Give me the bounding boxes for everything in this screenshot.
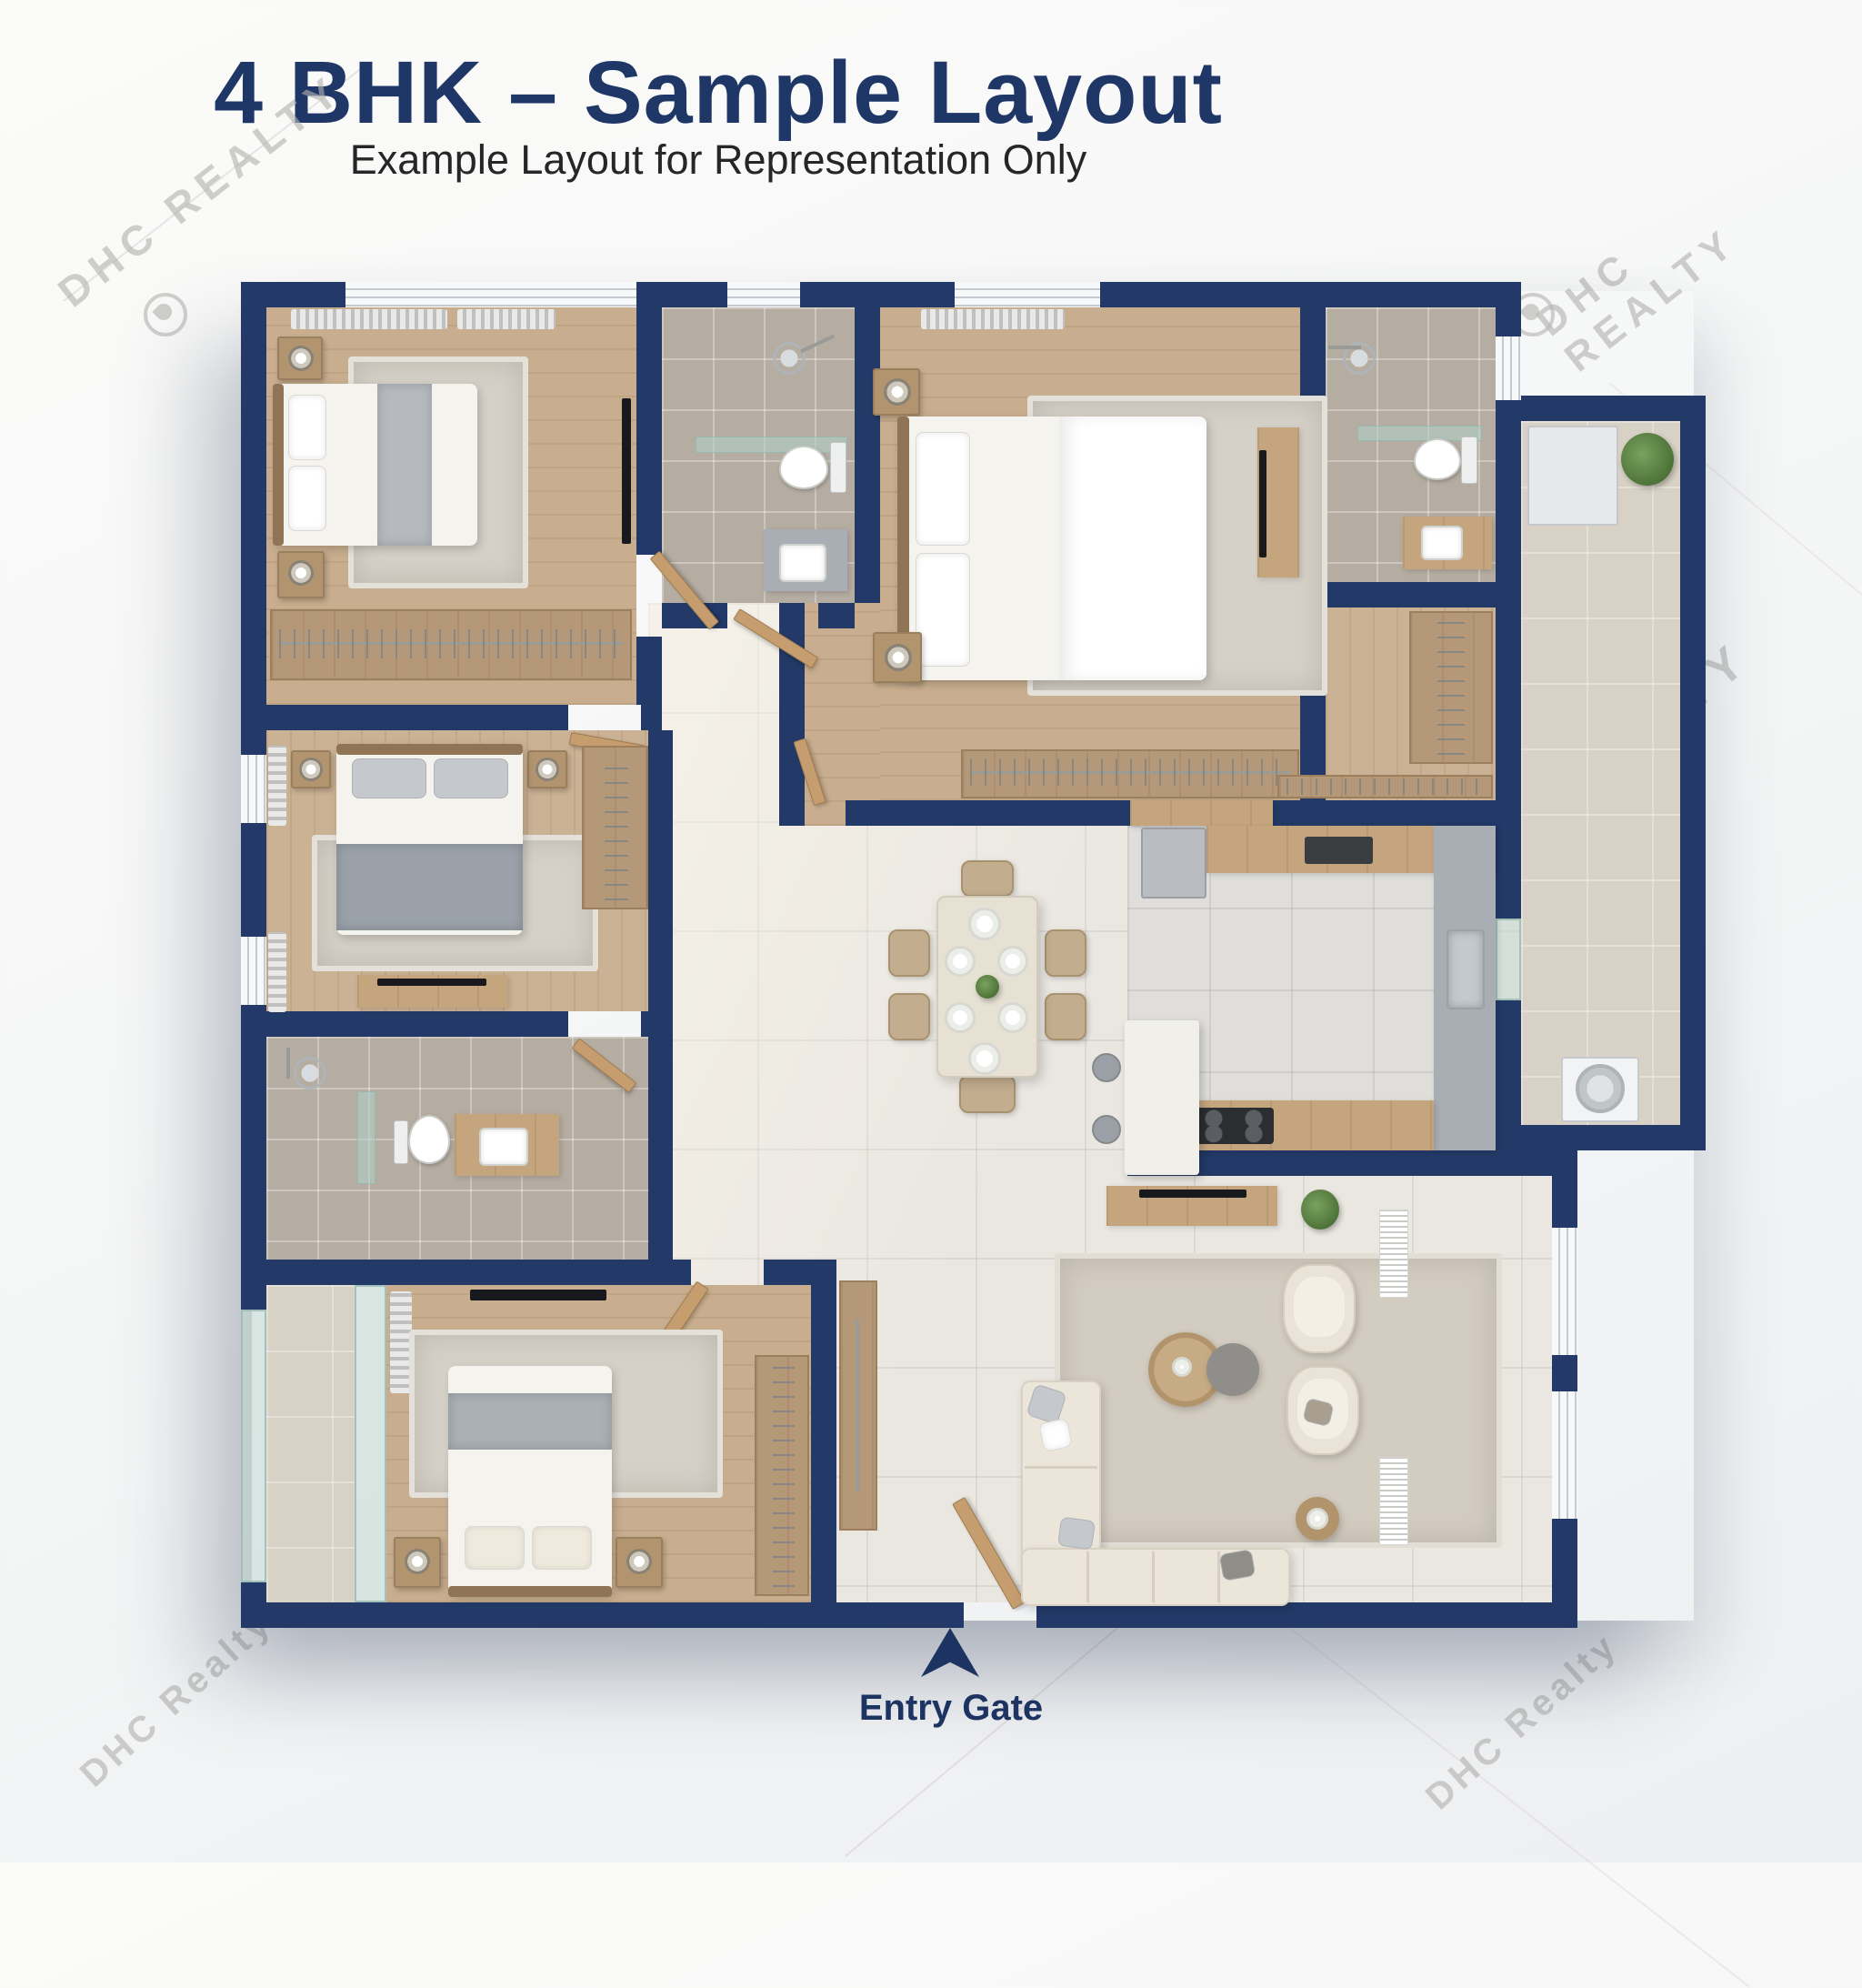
wall — [855, 307, 880, 603]
plate — [968, 1042, 1001, 1075]
balcony-glass-wall — [241, 1310, 266, 1582]
window — [1496, 336, 1521, 400]
shower-arm — [1328, 346, 1361, 349]
pillow — [916, 553, 970, 667]
plate — [997, 1002, 1028, 1033]
table-decor — [1306, 1508, 1328, 1530]
wall — [1552, 1519, 1577, 1602]
toilet-tank — [830, 442, 846, 493]
floor-plan — [241, 282, 1706, 1628]
table-lamp — [884, 378, 911, 406]
plate — [968, 908, 1001, 940]
wall — [1036, 1602, 1577, 1628]
window — [955, 282, 1100, 307]
entry-gate-label: Entry Gate — [815, 1688, 1087, 1729]
curtain — [268, 746, 286, 826]
fridge — [1141, 828, 1206, 899]
bed-duvet — [1059, 417, 1206, 680]
dining-chair — [1045, 929, 1086, 977]
window — [1552, 1391, 1577, 1519]
curtain — [291, 309, 447, 329]
wall — [1100, 282, 1496, 307]
bathroom-sink — [1421, 526, 1463, 560]
pillow — [288, 466, 326, 531]
table-lamp — [288, 346, 314, 371]
pillow — [352, 758, 426, 798]
tv — [1139, 1190, 1246, 1198]
sofa-pillow — [1057, 1517, 1096, 1551]
tv — [377, 979, 486, 986]
wall — [1552, 1355, 1577, 1391]
kitchen-utility-glass-door — [1496, 919, 1521, 1000]
coffee-side-table — [1206, 1343, 1259, 1396]
page-title: 4 BHK – Sample Layout — [0, 42, 1437, 144]
wall — [241, 823, 266, 937]
toilet — [1414, 438, 1461, 480]
kitchen-cooktop-inset — [1305, 837, 1373, 864]
wall — [1326, 582, 1496, 607]
armchair-cushion — [1294, 1277, 1345, 1337]
wardrobe-hangers — [605, 755, 628, 900]
wall — [636, 307, 662, 555]
sofa-cushion-gap — [1152, 1551, 1155, 1602]
wall — [1273, 800, 1496, 826]
curtain — [268, 932, 286, 1012]
balcony-floor — [266, 1285, 355, 1602]
utility-balcony-floor — [1521, 421, 1680, 1125]
sofa-cushion-gap — [1025, 1466, 1097, 1469]
dining-chair — [1045, 993, 1086, 1040]
poster: { "header": { "title": "4 BHK – Sample L… — [0, 0, 1862, 1862]
wall — [648, 1037, 673, 1260]
toilet — [779, 446, 828, 489]
wall — [1521, 396, 1706, 421]
window — [727, 282, 800, 307]
entry-arrow-icon — [921, 1628, 979, 1677]
window-shade — [1379, 1457, 1408, 1545]
shower-arm — [286, 1048, 290, 1079]
wall — [241, 1582, 266, 1628]
dining-chair — [961, 860, 1014, 897]
toilet-tank — [394, 1120, 408, 1164]
pillow — [465, 1526, 525, 1570]
wall — [241, 1602, 964, 1628]
wall — [648, 730, 673, 1011]
bed-throw-blanket — [448, 1393, 612, 1450]
dhc-logo-icon — [144, 293, 187, 336]
wall — [241, 705, 568, 730]
wall — [1552, 1176, 1577, 1228]
kitchen-upper-cabinets — [1130, 800, 1273, 826]
curtain — [457, 309, 556, 329]
wall — [1496, 400, 1521, 421]
shower-head — [773, 342, 806, 375]
table-lamp — [885, 644, 912, 671]
table-decor — [1172, 1357, 1192, 1377]
plate — [997, 946, 1028, 977]
wall — [818, 603, 855, 628]
pillow — [434, 758, 508, 798]
crease-line — [1290, 1628, 1750, 1988]
wall — [636, 282, 727, 307]
table-centerpiece — [976, 975, 999, 999]
wall — [846, 800, 1130, 826]
bathroom-sink — [779, 544, 826, 582]
toilet-tank — [1461, 437, 1477, 484]
wall — [636, 637, 662, 705]
plant — [1301, 1190, 1339, 1230]
table-lamp — [405, 1549, 430, 1574]
window — [345, 282, 636, 307]
window-shade — [1379, 1210, 1408, 1298]
bar-stool — [1092, 1053, 1121, 1082]
sofa-cushion-gap — [1086, 1551, 1089, 1602]
tv-panel — [622, 398, 631, 544]
plate — [945, 946, 976, 977]
bed-headboard — [448, 1586, 612, 1597]
table-lamp — [626, 1549, 652, 1574]
window — [241, 937, 266, 1005]
pillow — [288, 395, 326, 460]
kitchen-island — [1125, 1020, 1199, 1175]
pillow — [532, 1526, 592, 1570]
wardrobe-hangers — [1286, 778, 1485, 795]
washer-door — [1576, 1064, 1625, 1113]
window — [241, 755, 266, 823]
wall — [241, 282, 266, 755]
kitchen-sink — [1447, 929, 1485, 1009]
wardrobe-hangers — [1437, 620, 1465, 755]
plant — [1621, 433, 1674, 486]
wall — [800, 282, 955, 307]
wardrobe-hangers — [970, 758, 1290, 786]
wall — [241, 1011, 568, 1037]
sofa-pillow — [1219, 1549, 1256, 1581]
shower-head — [294, 1057, 326, 1089]
dining-chair — [959, 1075, 1016, 1113]
watermark: DHC Realty — [1418, 1625, 1627, 1819]
table-lamp — [299, 758, 323, 781]
tv-panel — [470, 1290, 606, 1300]
bed-headboard — [336, 744, 523, 755]
wall — [1496, 1000, 1521, 1125]
window — [1552, 1228, 1577, 1355]
wall — [1496, 1125, 1706, 1150]
cabinet-handle — [856, 1319, 859, 1491]
wall — [641, 705, 662, 730]
bed-throw-blanket — [336, 844, 523, 930]
table-lamp — [536, 758, 559, 781]
dining-chair — [888, 993, 930, 1040]
wall — [1496, 282, 1521, 336]
wardrobe-hangers — [279, 629, 623, 658]
shower-glass-panel — [357, 1091, 375, 1184]
wall — [641, 1011, 673, 1037]
wall — [1496, 421, 1521, 919]
utility-cabinet — [1527, 426, 1618, 526]
watermark: DHC Realty — [73, 1602, 281, 1796]
bedroom3-balcony-glass — [355, 1285, 386, 1602]
wall — [811, 1260, 836, 1602]
curtain — [921, 309, 1065, 329]
living-rug — [1055, 1253, 1502, 1548]
toilet — [408, 1115, 450, 1164]
wardrobe-hangers — [773, 1364, 795, 1587]
tv — [1259, 450, 1266, 557]
bed-throw-blanket — [377, 384, 432, 546]
bed-headboard — [273, 384, 284, 546]
wall — [241, 1260, 691, 1285]
glass-shelf — [696, 437, 847, 453]
dining-chair — [888, 929, 930, 977]
wall — [1680, 421, 1706, 1125]
hob — [1194, 1108, 1274, 1144]
bathroom-sink — [479, 1128, 528, 1166]
pillow — [916, 432, 970, 546]
plate — [945, 1002, 976, 1033]
table-lamp — [288, 560, 314, 586]
bar-stool — [1092, 1115, 1121, 1144]
